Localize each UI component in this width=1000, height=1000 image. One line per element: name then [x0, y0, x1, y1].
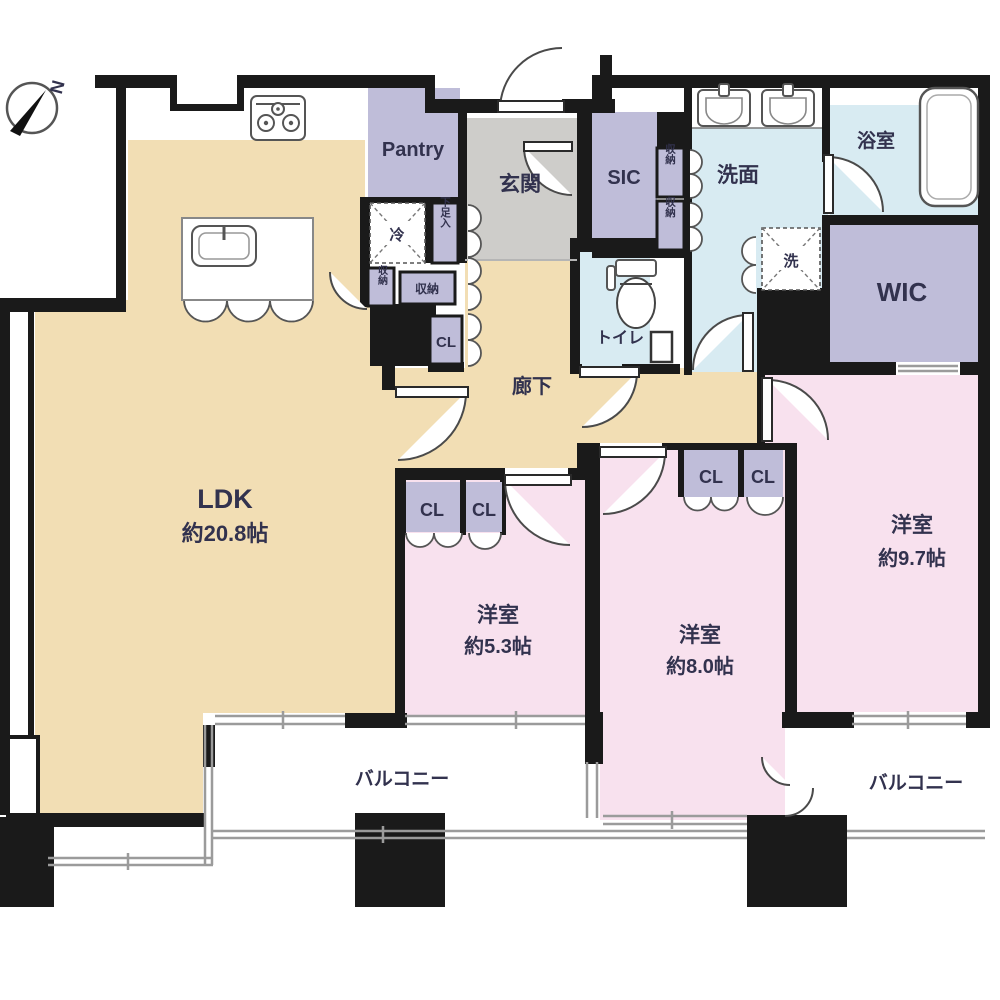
wic-label: WIC — [877, 277, 928, 307]
closet-label: CL — [420, 500, 444, 520]
compass-needle-icon — [10, 90, 46, 136]
kitchen-island — [182, 218, 313, 300]
pipe-shaft — [8, 737, 38, 815]
genkan-label: 玄関 — [499, 172, 541, 196]
west-room-mid-label: 洋室 — [679, 623, 721, 647]
pillar — [0, 817, 54, 907]
refrigerator-label: 冷 — [389, 226, 404, 244]
pillar — [747, 815, 847, 907]
senmen-label: 洗面 — [717, 164, 759, 187]
closet-label: CL — [436, 334, 456, 351]
hallway-label: 廊下 — [512, 374, 552, 398]
bathroom-sink-icon — [762, 84, 814, 126]
west-room-large-label: 洋室 — [891, 513, 933, 537]
compass: N — [7, 78, 68, 136]
sic-label: SIC — [607, 167, 640, 189]
west-room-small-size: 約5.3帖 — [464, 634, 532, 658]
floor-plan-svg: N LDK 約20.8帖 Pantry 玄関 SIC 洗面 浴室 WIC トイレ… — [0, 0, 1000, 1000]
closet-label: CL — [472, 500, 496, 520]
balcony-right-label: バルコニー — [869, 772, 964, 794]
toilet-counter — [651, 332, 672, 362]
wic-door-gap — [896, 362, 960, 375]
bath-label: 浴室 — [857, 129, 895, 152]
storage-label: 収納 — [376, 265, 388, 286]
toilet-label: トイレ — [596, 330, 644, 347]
ldk-label: LDK — [197, 484, 253, 514]
closet-label: CL — [751, 467, 775, 487]
storage-label: 収納 — [415, 281, 439, 296]
storage-label: 収納 — [664, 197, 676, 219]
balcony-service-door-arc — [785, 788, 813, 816]
bathtub-icon — [920, 88, 978, 206]
west-room-mid-size: 約8.0帖 — [666, 654, 734, 678]
floor-plan: N LDK 約20.8帖 Pantry 玄関 SIC 洗面 浴室 WIC トイレ… — [0, 0, 1000, 1000]
ldk-size: 約20.8帖 — [182, 521, 269, 546]
closet-label: CL — [699, 467, 723, 487]
west-room-small-label: 洋室 — [477, 603, 519, 627]
west-room-large-size: 約9.7帖 — [878, 546, 946, 570]
stove-icon — [251, 96, 305, 140]
pillar — [355, 813, 445, 907]
washer-label: 洗 — [783, 252, 798, 270]
bathroom-sink-icon — [698, 84, 750, 126]
shoe-storage-label: 下足入 — [439, 196, 451, 228]
entrance-door-leaf — [498, 101, 564, 112]
compass-north-label: N — [46, 78, 69, 96]
pantry-label: Pantry — [382, 139, 445, 161]
storage-label: 収納 — [664, 144, 676, 166]
balcony-left-label: バルコニー — [355, 768, 450, 790]
